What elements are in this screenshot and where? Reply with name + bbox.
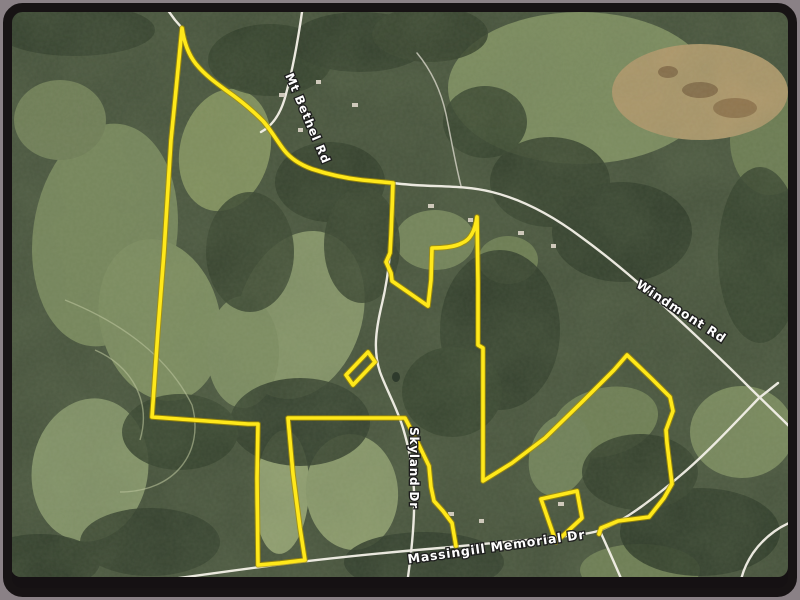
property-map-image: Mt Bethel Rd Windmont Rd Skyland Dr Mass… <box>0 0 800 600</box>
map-canvas: Mt Bethel Rd Windmont Rd Skyland Dr Mass… <box>0 0 800 600</box>
satellite-imagery: Mt Bethel Rd Windmont Rd Skyland Dr Mass… <box>0 4 800 600</box>
pond <box>392 372 400 382</box>
road-label-skyland-dr: Skyland Dr <box>407 427 421 509</box>
